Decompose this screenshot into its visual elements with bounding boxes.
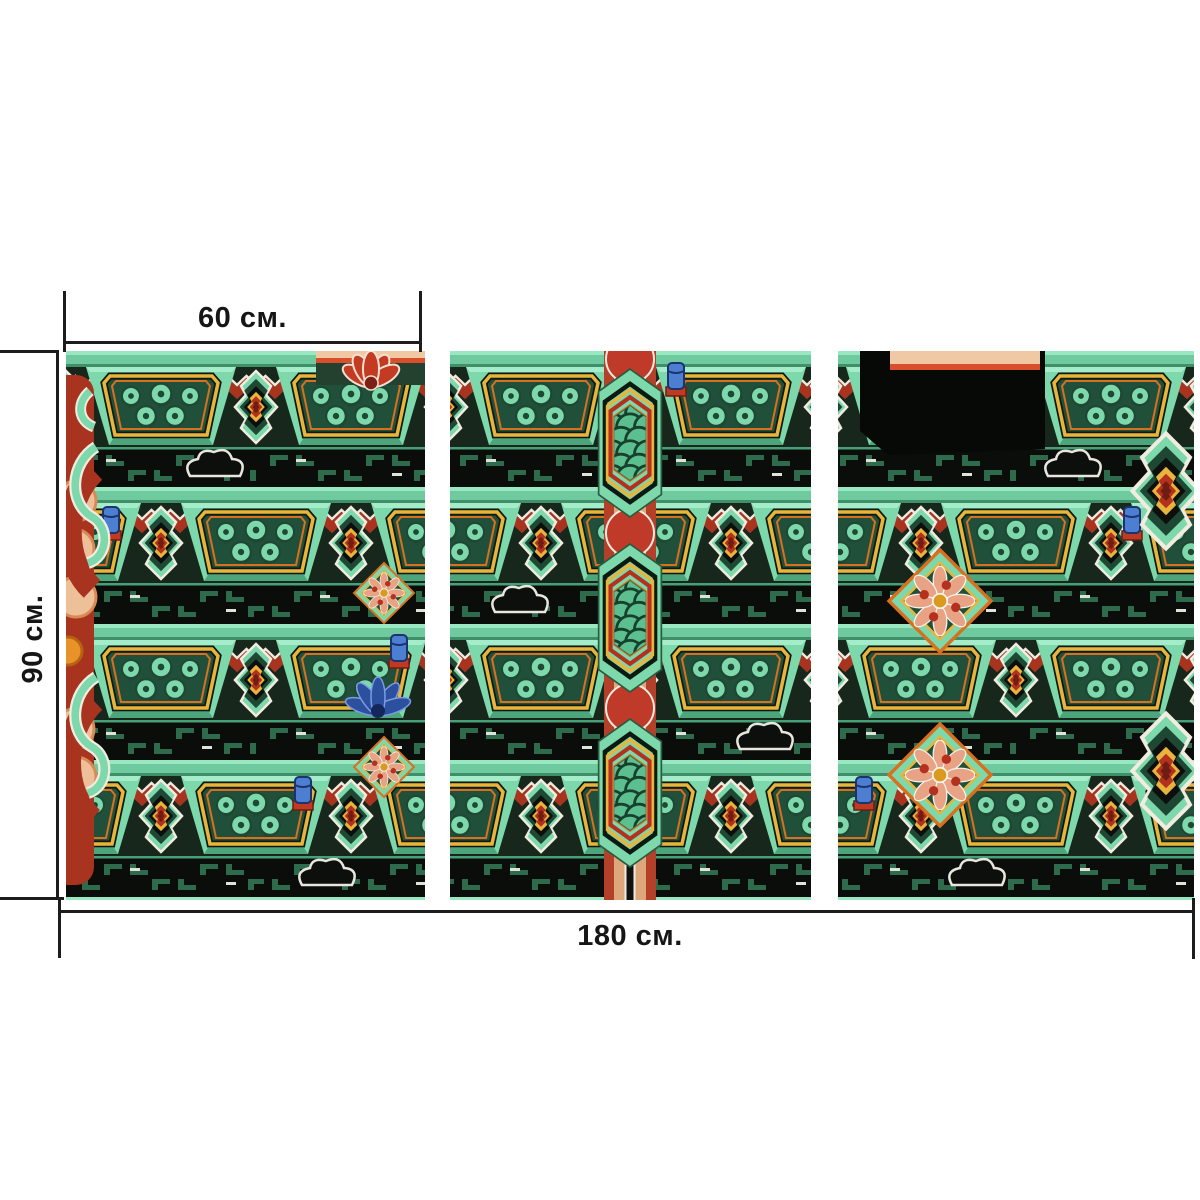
panel-right-artwork [838,351,1194,900]
panel-left-artwork [66,351,425,900]
dimension-line-total-width [58,910,1195,913]
height-label: 90 см. [16,569,50,709]
canvas-panel-right [838,351,1194,900]
total-width-label: 180 см. [66,920,1194,953]
dimension-tick [0,350,59,353]
dimension-tick [0,897,64,900]
dimension-line-panel-width [64,341,421,344]
panel-width-label: 60 см. [64,302,421,335]
canvas-panel-left [66,351,425,900]
product-mockup-stage: 60 см. 90 см. 180 см. [0,0,1200,1200]
panel-center-artwork [450,351,811,900]
canvas-panel-center [450,351,811,900]
dimension-line-height [56,351,59,900]
dimension-tick [58,897,61,958]
